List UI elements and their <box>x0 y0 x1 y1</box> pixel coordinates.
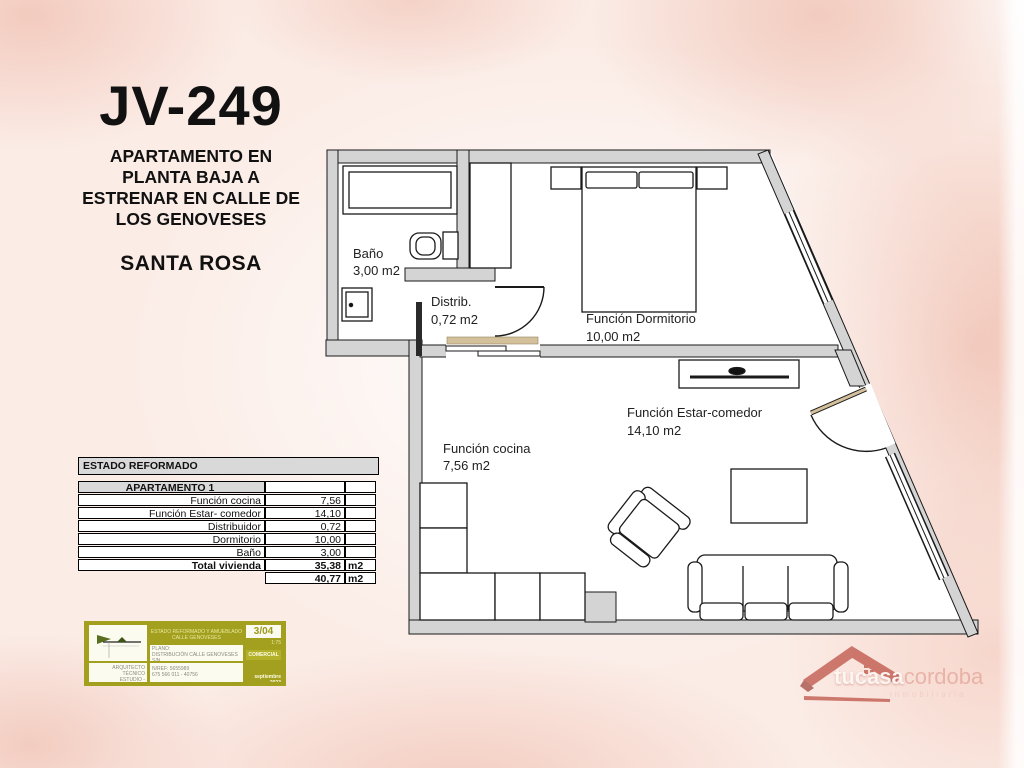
title-block-project: ESTADO REFORMADO Y AMUEBLADO CALLE GENOV… <box>150 626 243 646</box>
toilet <box>410 232 458 259</box>
room-area-dormitorio: 10,00 m2 <box>586 329 640 344</box>
listing-location: SANTA ROSA <box>42 252 340 276</box>
wall-bath-bottom <box>326 340 409 356</box>
sink <box>342 288 372 321</box>
title-block-ref: N/REF: 5655989 675 566 011 - 40756 <box>150 663 243 682</box>
room-area-cocina: 7,56 m2 <box>443 458 490 473</box>
nightstand-left <box>551 167 581 189</box>
room-area-estar-comedor: 14,10 m2 <box>627 423 681 438</box>
wall-left-bath <box>327 150 338 348</box>
sheet-number: 3/04 <box>246 625 281 638</box>
bathroom-door-leaf <box>416 302 422 356</box>
listing-header: JV-249 APARTAMENTO EN PLANTA BAJA A ESTR… <box>42 78 340 276</box>
nightstand-right <box>697 167 727 189</box>
wall-bottom <box>409 620 978 634</box>
room-area-distribuidor: 0,72 m2 <box>431 312 478 327</box>
sofa <box>688 555 848 620</box>
room-label-estar-comedor: Función Estar-comedor <box>627 405 763 420</box>
wall-top <box>327 150 770 163</box>
room-label-bano: Baño <box>353 246 383 261</box>
subtitle-line: APARTAMENTO EN <box>42 146 340 167</box>
wall-kitchen-stub <box>585 592 616 622</box>
room-label-distribuidor: Distrib. <box>431 294 471 309</box>
brand-tagline: inmobiliaria <box>890 690 966 699</box>
brand-name: tucasacordoba <box>834 664 983 690</box>
drawing-stage: COMERCIAL <box>246 650 281 660</box>
architect-logo-cell <box>89 625 147 661</box>
listing-subtitle: APARTAMENTO EN PLANTA BAJA A ESTRENAR EN… <box>42 146 340 230</box>
title-block-plan-info: PLANO: DISTRIBUCIÓN CALLE GENOVESES S/N … <box>150 645 243 661</box>
room-area-bano: 3,00 m2 <box>353 263 400 278</box>
brand-logo: tucasacordoba inmobiliaria <box>798 644 973 708</box>
tv-unit <box>679 360 799 388</box>
listing-code: JV-249 <box>42 78 340 134</box>
room-label-dormitorio: Función Dormitorio <box>586 311 696 326</box>
architect-logo <box>89 625 147 661</box>
wardrobe <box>470 163 511 268</box>
subtitle-line: ESTRENAR EN CALLE DE <box>42 188 340 209</box>
drawing-date: septiembre 2023 <box>246 662 281 682</box>
bathtub <box>343 166 457 214</box>
subtitle-line: LOS GENOVESES <box>42 209 340 230</box>
wall-distrib-top <box>405 268 495 281</box>
floor-plan: Baño 3,00 m2 Distrib. 0,72 m2 Función Do… <box>320 140 1000 650</box>
wall-bath-right <box>457 150 469 274</box>
room-label-cocina: Función cocina <box>443 441 531 456</box>
subtitle-line: PLANTA BAJA A <box>42 167 340 188</box>
drawing-scale: 1:75 <box>246 640 281 648</box>
drawing-title-block: ARQUITECTO TÉCNICO ESTUDIO - DELINEACIÓN… <box>84 621 286 686</box>
pillow <box>639 172 693 188</box>
pillow <box>586 172 637 188</box>
table-header: APARTAMENTO 1 <box>78 481 265 493</box>
title-block-firm: ARQUITECTO TÉCNICO ESTUDIO - DELINEACIÓN <box>89 663 147 682</box>
coffee-table <box>731 469 807 523</box>
